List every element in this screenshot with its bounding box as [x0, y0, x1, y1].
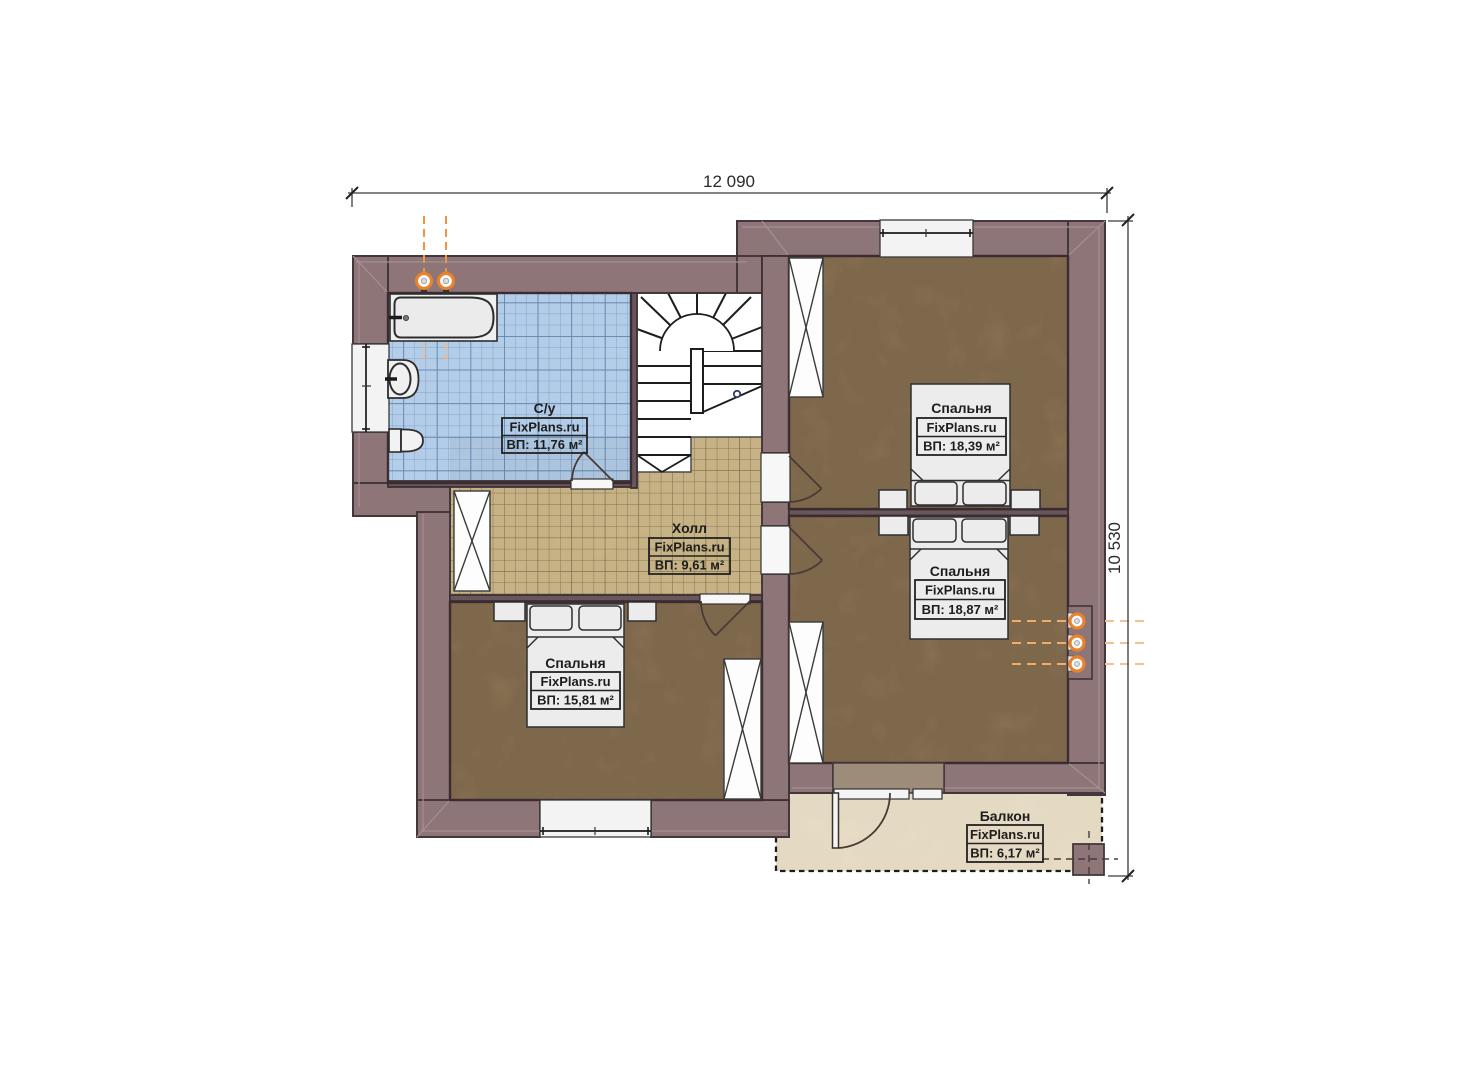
- svg-text:С/у: С/у: [534, 400, 556, 416]
- svg-text:ВП: 18,39 м²: ВП: 18,39 м²: [923, 438, 1000, 453]
- svg-text:FixPlans.ru: FixPlans.ru: [926, 420, 996, 435]
- svg-text:FixPlans.ru: FixPlans.ru: [654, 540, 724, 555]
- svg-text:ВП: 15,81 м²: ВП: 15,81 м²: [537, 692, 614, 707]
- svg-text:Холл: Холл: [672, 520, 707, 536]
- svg-text:10 530: 10 530: [1105, 522, 1124, 574]
- svg-text:ВП: 18,87 м²: ВП: 18,87 м²: [922, 602, 999, 617]
- svg-text:ВП: 6,17 м²: ВП: 6,17 м²: [970, 845, 1040, 860]
- svg-text:FixPlans.ru: FixPlans.ru: [970, 827, 1040, 842]
- svg-text:Балкон: Балкон: [980, 808, 1031, 824]
- svg-text:Спальня: Спальня: [931, 400, 991, 416]
- svg-text:Спальня: Спальня: [930, 563, 990, 579]
- svg-text:ВП: 11,76 м²: ВП: 11,76 м²: [506, 437, 583, 452]
- svg-text:Спальня: Спальня: [545, 655, 605, 671]
- svg-text:12 090: 12 090: [703, 172, 755, 191]
- svg-text:FixPlans.ru: FixPlans.ru: [925, 582, 995, 597]
- svg-text:ВП: 9,61 м²: ВП: 9,61 м²: [655, 558, 725, 573]
- svg-text:FixPlans.ru: FixPlans.ru: [540, 674, 610, 689]
- svg-text:FixPlans.ru: FixPlans.ru: [509, 419, 579, 434]
